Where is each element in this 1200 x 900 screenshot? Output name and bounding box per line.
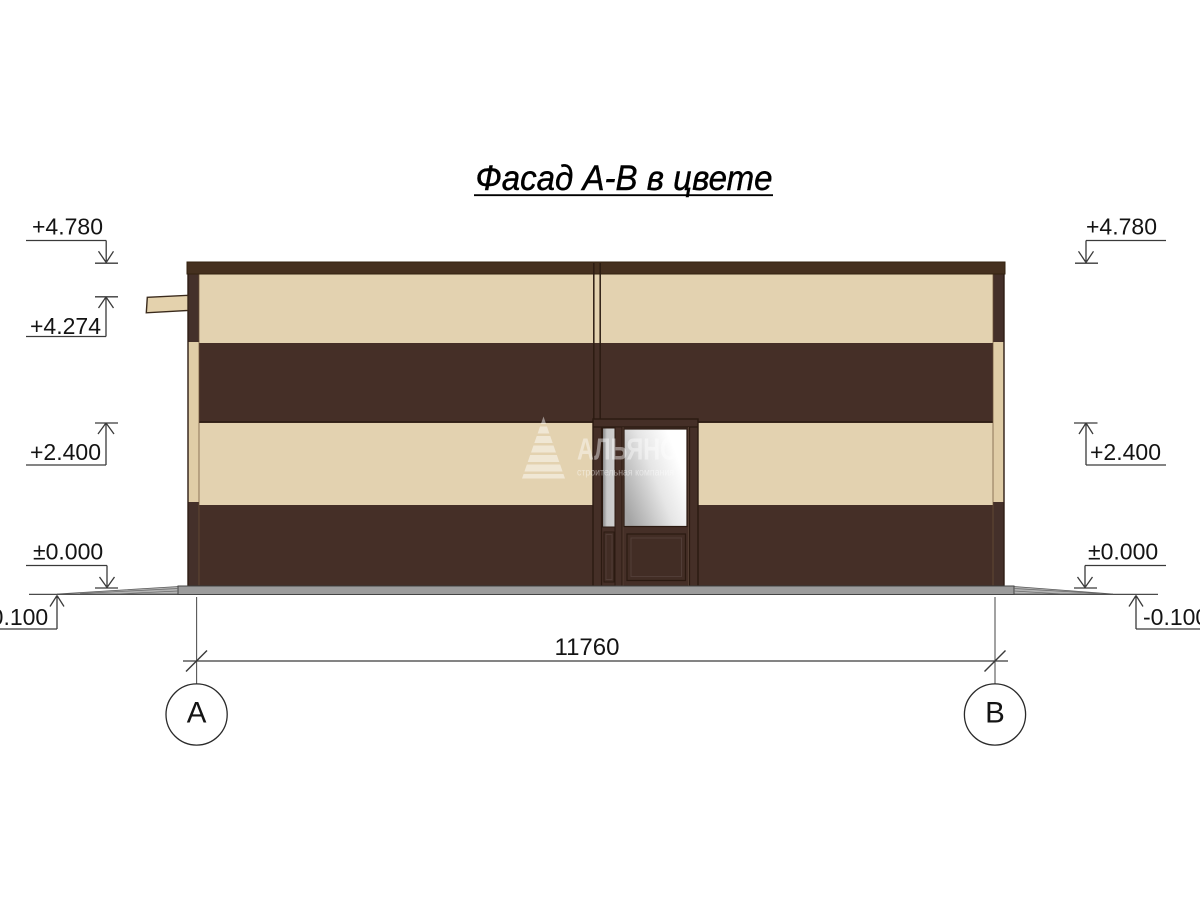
svg-text:+4.780: +4.780 [1086,214,1157,240]
svg-text:±0.000: ±0.000 [33,539,103,565]
svg-text:-0.100: -0.100 [1143,604,1200,630]
svg-text:строительная компания: строительная компания [577,468,674,479]
svg-text:±0.000: ±0.000 [1088,539,1158,565]
svg-text:Фасад А-В в цвете: Фасад А-В в цвете [476,158,773,198]
svg-text:-0.100: -0.100 [0,604,48,630]
svg-text:АЛЬЯНС: АЛЬЯНС [577,432,677,467]
svg-text:11760: 11760 [555,634,620,661]
svg-text:+4.780: +4.780 [32,214,103,240]
svg-text:+2.400: +2.400 [1090,439,1161,465]
svg-text:А: А [187,697,207,730]
svg-text:+4.274: +4.274 [30,313,101,339]
svg-text:+2.400: +2.400 [30,439,101,465]
svg-text:В: В [985,697,1005,730]
